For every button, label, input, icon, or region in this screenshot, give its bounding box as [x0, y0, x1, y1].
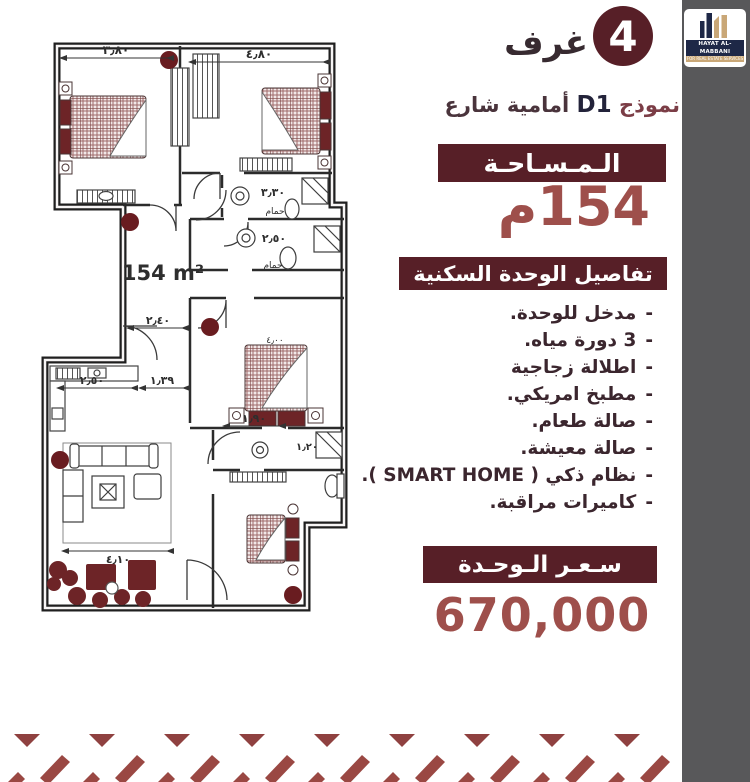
- rooms-label: غرف: [504, 23, 588, 63]
- detail-text: 3 دورة مياه.: [524, 327, 636, 354]
- dining-set: [47, 560, 156, 608]
- bullet-dash: -: [645, 381, 653, 408]
- dim-380: ٣٫٨٠: [103, 43, 129, 57]
- bed-4: [247, 504, 299, 575]
- living-room: [63, 443, 171, 543]
- logo-tagline: FOR REAL ESTATE SERVICES: [686, 56, 744, 62]
- doors: [123, 173, 248, 600]
- logo-bars-icon: [697, 12, 733, 40]
- area-value: 154م: [498, 178, 650, 236]
- right-sidebar-strip: [682, 0, 750, 782]
- bath2-label: حمام: [263, 261, 282, 271]
- bullet-dash: -: [645, 300, 653, 327]
- plan-area-label: 154 m²: [122, 261, 204, 285]
- detail-item: -نظام ذكي ( SMART HOME ).: [361, 462, 653, 489]
- detail-text: نظام ذكي ( SMART HOME ).: [361, 462, 636, 489]
- dim-139: ١٫٣٩: [150, 374, 175, 387]
- detail-text: كاميرات مراقبة.: [490, 489, 637, 516]
- bath1-label: حمام: [265, 207, 284, 217]
- dim-250b: ٢٫٥٠: [80, 374, 104, 387]
- bed-2: [262, 74, 331, 169]
- detail-item: -مطبخ امريكي.: [361, 381, 653, 408]
- model-suffix: أمامية شارع: [445, 93, 570, 117]
- bed-1: [59, 82, 146, 174]
- flyer-canvas: 154 m² ٣٫٨٠ ٤٫٨٠ ٣٫٣٠ حمام ٢٫٥٠ حمام ٢٫٤…: [0, 0, 750, 782]
- bullet-dash: -: [645, 489, 653, 516]
- detail-item: -اطلالة زجاجية: [361, 354, 653, 381]
- floor-plan-svg: 154 m² ٣٫٨٠ ٤٫٨٠ ٣٫٣٠ حمام ٢٫٥٠ حمام ٢٫٤…: [30, 18, 355, 643]
- dim-190: ١٫٩٠: [242, 412, 266, 425]
- dim-330: ٣٫٣٠: [261, 186, 285, 199]
- detail-text: مدخل للوحدة.: [510, 300, 637, 327]
- bullet-dash: -: [645, 462, 653, 489]
- bullet-dash: -: [645, 435, 653, 462]
- bullet-dash: -: [645, 354, 653, 381]
- bottom-pattern: [0, 726, 750, 782]
- detail-item: -3 دورة مياه.: [361, 327, 653, 354]
- logo-name: HAYAT AL-MABBANI: [686, 40, 744, 56]
- dim-250a: ٢٫٥٠: [262, 232, 286, 245]
- dim-480: ٤٫٨٠: [246, 47, 272, 61]
- rooms-badge: غرف 4: [504, 6, 653, 66]
- detail-text: صالة معيشة.: [520, 435, 636, 462]
- dim-400: ٤٫٠٠: [266, 336, 283, 346]
- detail-item: -صالة معيشة.: [361, 435, 653, 462]
- details-list: -مدخل للوحدة. -3 دورة مياه. -اطلالة زجاج…: [361, 300, 653, 516]
- price-value: 670,000: [424, 588, 660, 642]
- model-word: نموذج: [619, 93, 680, 117]
- rooms-count-badge: 4: [593, 6, 653, 66]
- details-banner: تفاصيل الوحدة السكنية: [399, 257, 667, 290]
- company-logo: HAYAT AL-MABBANI FOR REAL ESTATE SERVICE…: [684, 9, 746, 67]
- detail-item: -مدخل للوحدة.: [361, 300, 653, 327]
- dim-240: ٢٫٤٠: [146, 314, 170, 327]
- detail-text: صالة طعام.: [531, 408, 636, 435]
- detail-text: مطبخ امريكي.: [507, 381, 637, 408]
- model-code: D1: [577, 92, 612, 118]
- model-line: نموذج D1 أمامية شارع: [445, 92, 680, 118]
- bullet-dash: -: [645, 408, 653, 435]
- bullet-dash: -: [645, 327, 653, 354]
- dim-120: ١٫٢٠: [296, 442, 318, 453]
- dim-410: ٤٫١٠: [106, 553, 130, 566]
- detail-item: -صالة طعام.: [361, 408, 653, 435]
- floor-plan: 154 m² ٣٫٨٠ ٤٫٨٠ ٣٫٣٠ حمام ٢٫٥٠ حمام ٢٫٤…: [30, 18, 355, 643]
- price-banner: سـعـر الـوحـدة: [423, 546, 657, 583]
- detail-text: اطلالة زجاجية: [511, 354, 636, 381]
- detail-item: -كاميرات مراقبة.: [361, 489, 653, 516]
